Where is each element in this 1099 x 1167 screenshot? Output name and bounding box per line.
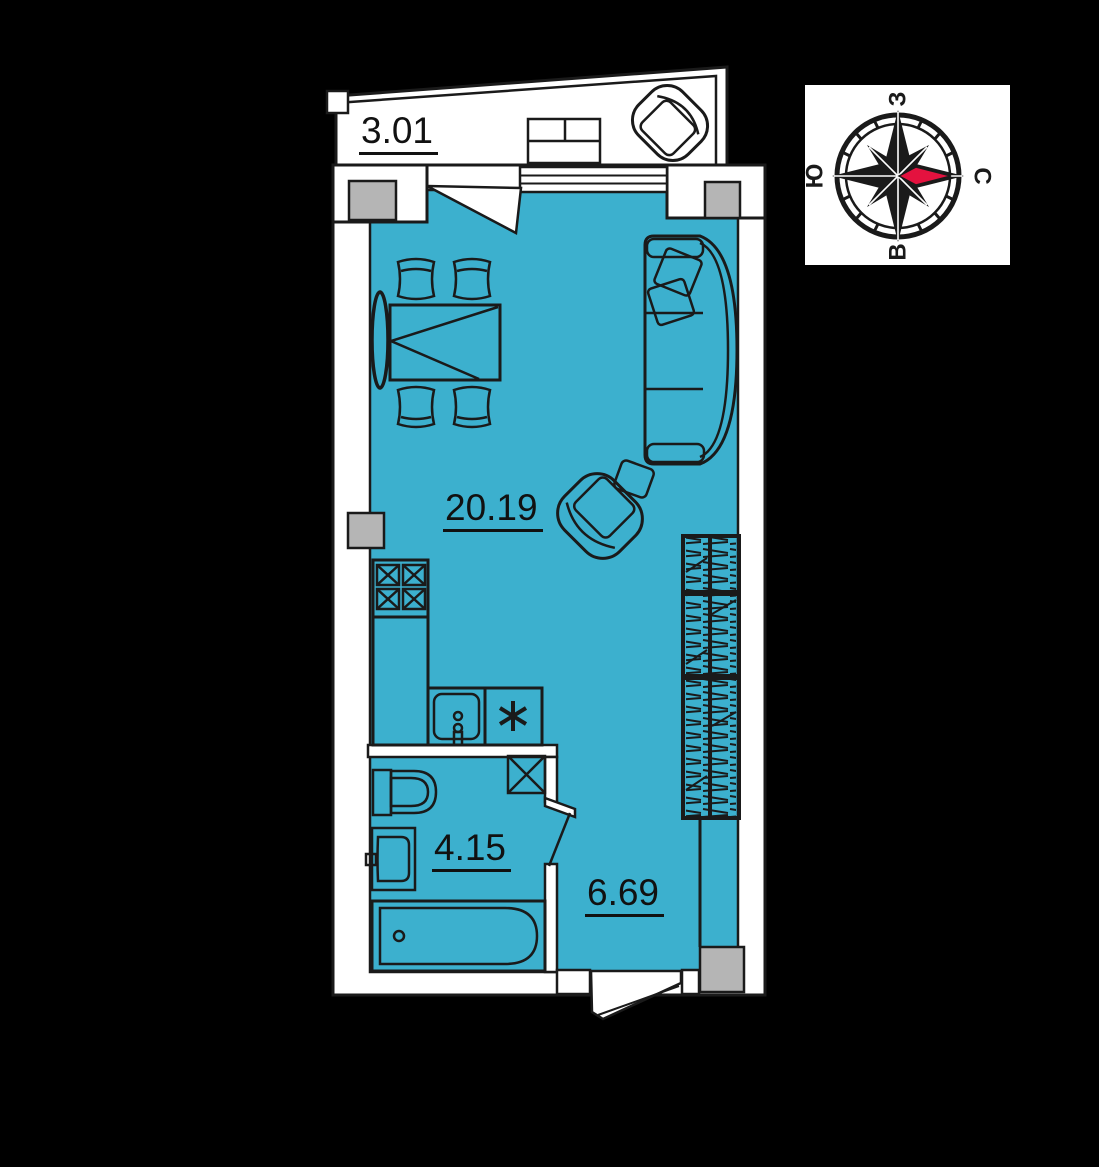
compass-letter-east: В bbox=[885, 243, 912, 260]
wall-notch bbox=[327, 91, 348, 113]
compass-letter-west: З bbox=[885, 91, 912, 106]
compass-letter-south: Ю bbox=[802, 164, 829, 189]
entrance-jamb-right bbox=[682, 970, 699, 994]
floorplan-drawing: З С Ю В bbox=[0, 0, 1099, 1167]
compass-rose: З С Ю В bbox=[802, 85, 1011, 265]
window-icon bbox=[520, 167, 667, 192]
column-mid-left bbox=[348, 513, 384, 548]
compass-letter-north: С bbox=[969, 167, 996, 184]
column-top-left bbox=[349, 181, 396, 220]
area-label-bathroom: 4.15 bbox=[432, 829, 511, 872]
column-top-right bbox=[705, 182, 740, 218]
area-label-living: 20.19 bbox=[443, 489, 543, 532]
area-label-balcony: 3.01 bbox=[359, 112, 438, 155]
column-bottom-right bbox=[700, 947, 744, 992]
entrance-jamb-left bbox=[557, 970, 590, 994]
area-label-hallway: 6.69 bbox=[585, 874, 664, 917]
wardrobe-icon bbox=[683, 536, 739, 818]
floorplan-canvas: З С Ю В 3.01 20.19 4.15 6.69 bbox=[0, 0, 1099, 1167]
